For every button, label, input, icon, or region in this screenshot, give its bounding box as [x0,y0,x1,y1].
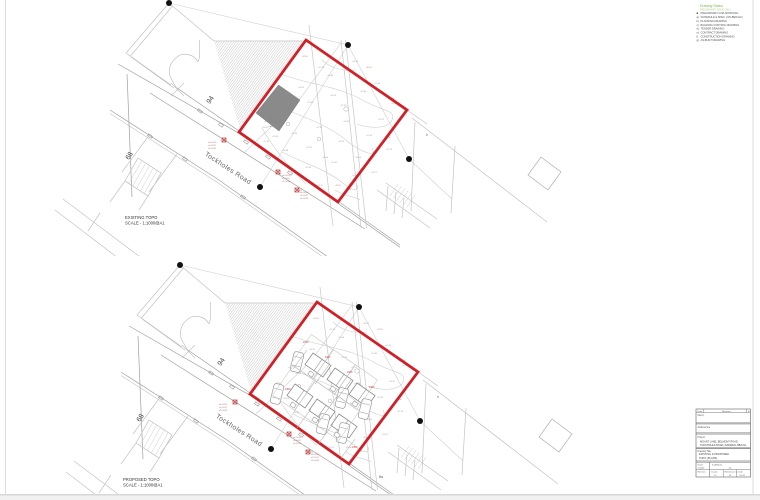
svg-text:s1+94.17: s1+94.17 [208,145,217,147]
svg-text:+97.20: +97.20 [329,329,336,331]
svg-text:+97.20: +97.20 [318,67,325,69]
svg-text:d): d) [697,27,700,31]
svg-text:s2+94.24: s2+94.24 [311,460,320,462]
svg-text:+96.34: +96.34 [338,141,345,143]
svg-text:+97.65: +97.65 [305,167,312,169]
svg-text:+97.31: +97.31 [306,147,313,149]
svg-text:01-24: 01-24 [740,475,746,477]
svg-text:Scale: Scale [698,464,704,466]
svg-text:+97.50: +97.50 [377,329,383,331]
svg-text:+95.44: +95.44 [291,133,298,135]
svg-text:PROPOSED TOPO: PROPOSED TOPO [123,477,160,482]
svg-text:Address line: Address line [698,426,711,429]
svg-text:s1+94.17: s1+94.17 [293,440,302,442]
svg-text:+96.86: +96.86 [327,75,334,77]
svg-text:SCHEDULE & SPEC. (ON-BEHALF): SCHEDULE & SPEC. (ON-BEHALF) [701,15,743,19]
svg-text:+95.28: +95.28 [272,136,279,138]
svg-text:+95.37: +95.37 [378,119,385,121]
svg-text:TOCKHOLES ROAD, DARWEN, BB3 0L: TOCKHOLES ROAD, DARWEN, BB3 0LL [700,444,747,447]
svg-text:8a: 8a [379,475,383,479]
svg-text:BUILDING CONTROL DRAWING: BUILDING CONTROL DRAWING [701,23,740,27]
svg-text:a): a) [697,15,700,19]
svg-text:+97.50: +97.50 [313,318,319,320]
svg-text:Date: Date [698,410,703,413]
svg-text:+96.23: +96.23 [363,323,370,325]
svg-text:+96.68: +96.68 [282,150,289,152]
svg-text:Client:: Client: [698,414,705,417]
svg-text:SCALE - 1:1000@A1: SCALE - 1:1000@A1 [125,221,165,226]
svg-text:b: b [426,133,428,137]
svg-text:+95.62: +95.62 [331,162,338,164]
svg-text:s0+94.10: s0+94.10 [300,192,309,194]
svg-text:+97.83: +97.83 [263,141,270,143]
svg-text:+95.35: +95.35 [307,102,314,104]
svg-text:s1+94.17: s1+94.17 [282,178,291,180]
svg-text:CONSTRUCTION DRAWING: CONSTRUCTION DRAWING [701,34,735,38]
svg-text:+97.38: +97.38 [295,373,302,375]
svg-text:EXISTING & PROPOSED: EXISTING & PROPOSED [699,452,729,456]
svg-text:2320: 2320 [325,356,331,359]
svg-text:s2+94.24: s2+94.24 [208,148,217,150]
svg-text:TENDER DRAWING: TENDER DRAWING [701,27,725,31]
svg-text:+95.89: +95.89 [360,91,367,93]
svg-text:s1+94.17: s1+94.17 [219,407,228,409]
svg-text:+96.25: +96.25 [309,349,316,351]
svg-text:Revision: Revision [722,411,731,413]
svg-text:s1+94.17: s1+94.17 [311,457,320,459]
svg-text:+96.43: +96.43 [322,157,329,159]
svg-text:s0+94.10: s0+94.10 [219,404,228,406]
svg-text:+97.47: +97.47 [316,127,323,129]
svg-text:+95.26: +95.26 [374,83,381,85]
svg-text:PRELIMINARY ISSUE ONLY: PRELIMINARY ISSUE ONLY [700,8,731,11]
svg-text:+97.50: +97.50 [366,67,372,69]
svg-text:+95.53: +95.53 [366,135,373,137]
svg-text:AS-BUILT DRAWING: AS-BUILT DRAWING [701,38,725,42]
svg-text:+96.32: +96.32 [330,95,337,97]
svg-text:s2+94.24: s2+94.24 [300,198,309,200]
svg-text:+95.37: +95.37 [389,381,396,383]
svg-text:+95.26: +95.26 [385,345,392,347]
svg-text:Revision: Revision [698,472,707,474]
svg-text:+96.77: +96.77 [371,172,378,174]
svg-text:PRELIMINARY FOR APPROVAL: PRELIMINARY FOR APPROVAL [701,11,740,15]
svg-text:2360: 2360 [352,446,358,449]
svg-text:+97.56: +97.56 [386,149,393,151]
svg-text:c): c) [697,23,699,27]
svg-text:Project:: Project: [698,436,706,439]
svg-text:S-0960-01: S-0960-01 [712,464,723,466]
svg-text:GARAGE: GARAGE [268,125,278,128]
svg-text:1:1000: 1:1000 [698,468,705,470]
svg-text:+95.28: +95.28 [283,398,290,400]
svg-text:PLANNING DRAWING: PLANNING DRAWING [701,19,727,23]
svg-text:EXISTING TOPO: EXISTING TOPO [125,215,158,220]
svg-text:Drawn: Drawn [712,471,719,474]
svg-text:2350: 2350 [285,388,291,391]
svg-text:+97.50: +97.50 [302,56,308,58]
svg-text:s1+94.17: s1+94.17 [300,195,309,197]
svg-text:s0+94.10: s0+94.10 [282,175,291,177]
svg-text:CONTRACT DRAWING: CONTRACT DRAWING [701,30,729,34]
svg-text:f): f) [697,34,699,38]
svg-text:+97.50: +97.50 [335,185,341,187]
svg-text:+96.50: +96.50 [343,121,350,123]
svg-text:2340: 2340 [369,386,375,389]
svg-text:+95.89: +95.89 [371,353,378,355]
svg-text:s2+94.24: s2+94.24 [282,181,291,183]
svg-text:s2+94.24: s2+94.24 [219,410,228,412]
svg-text:+96.77: +96.77 [382,434,389,436]
svg-text:2310: 2310 [303,341,309,344]
svg-text:s0+94.10: s0+94.10 [208,142,217,144]
svg-text:+97.56: +97.56 [397,411,404,413]
svg-text:s2+94.24: s2+94.24 [293,443,302,445]
svg-text:s0+94.10: s0+94.10 [293,437,302,439]
svg-text:+96.59: +96.59 [355,157,362,159]
svg-text:+96.23: +96.23 [352,61,359,63]
svg-text:b: b [437,395,439,399]
svg-text:Reference no.: Reference no. [725,471,738,474]
svg-text:2330: 2330 [347,371,353,374]
svg-text:MOUNT LANE, BELMONT ROAD,: MOUNT LANE, BELMONT ROAD, [700,440,739,443]
svg-text:SCALE - 1:1000@A1: SCALE - 1:1000@A1 [123,483,163,488]
svg-text:b): b) [697,19,700,23]
svg-text:g): g) [697,38,700,42]
svg-text:- B -: - B - [728,468,732,470]
svg-text:+96.25: +96.25 [298,87,305,89]
svg-text:+95.53: +95.53 [377,397,384,399]
svg-text:s0+94.10: s0+94.10 [311,454,320,456]
svg-text:+96.86: +96.86 [338,337,345,339]
svg-text:e): e) [697,30,700,34]
svg-text:TOPO (PLANS): TOPO (PLANS) [699,456,717,460]
